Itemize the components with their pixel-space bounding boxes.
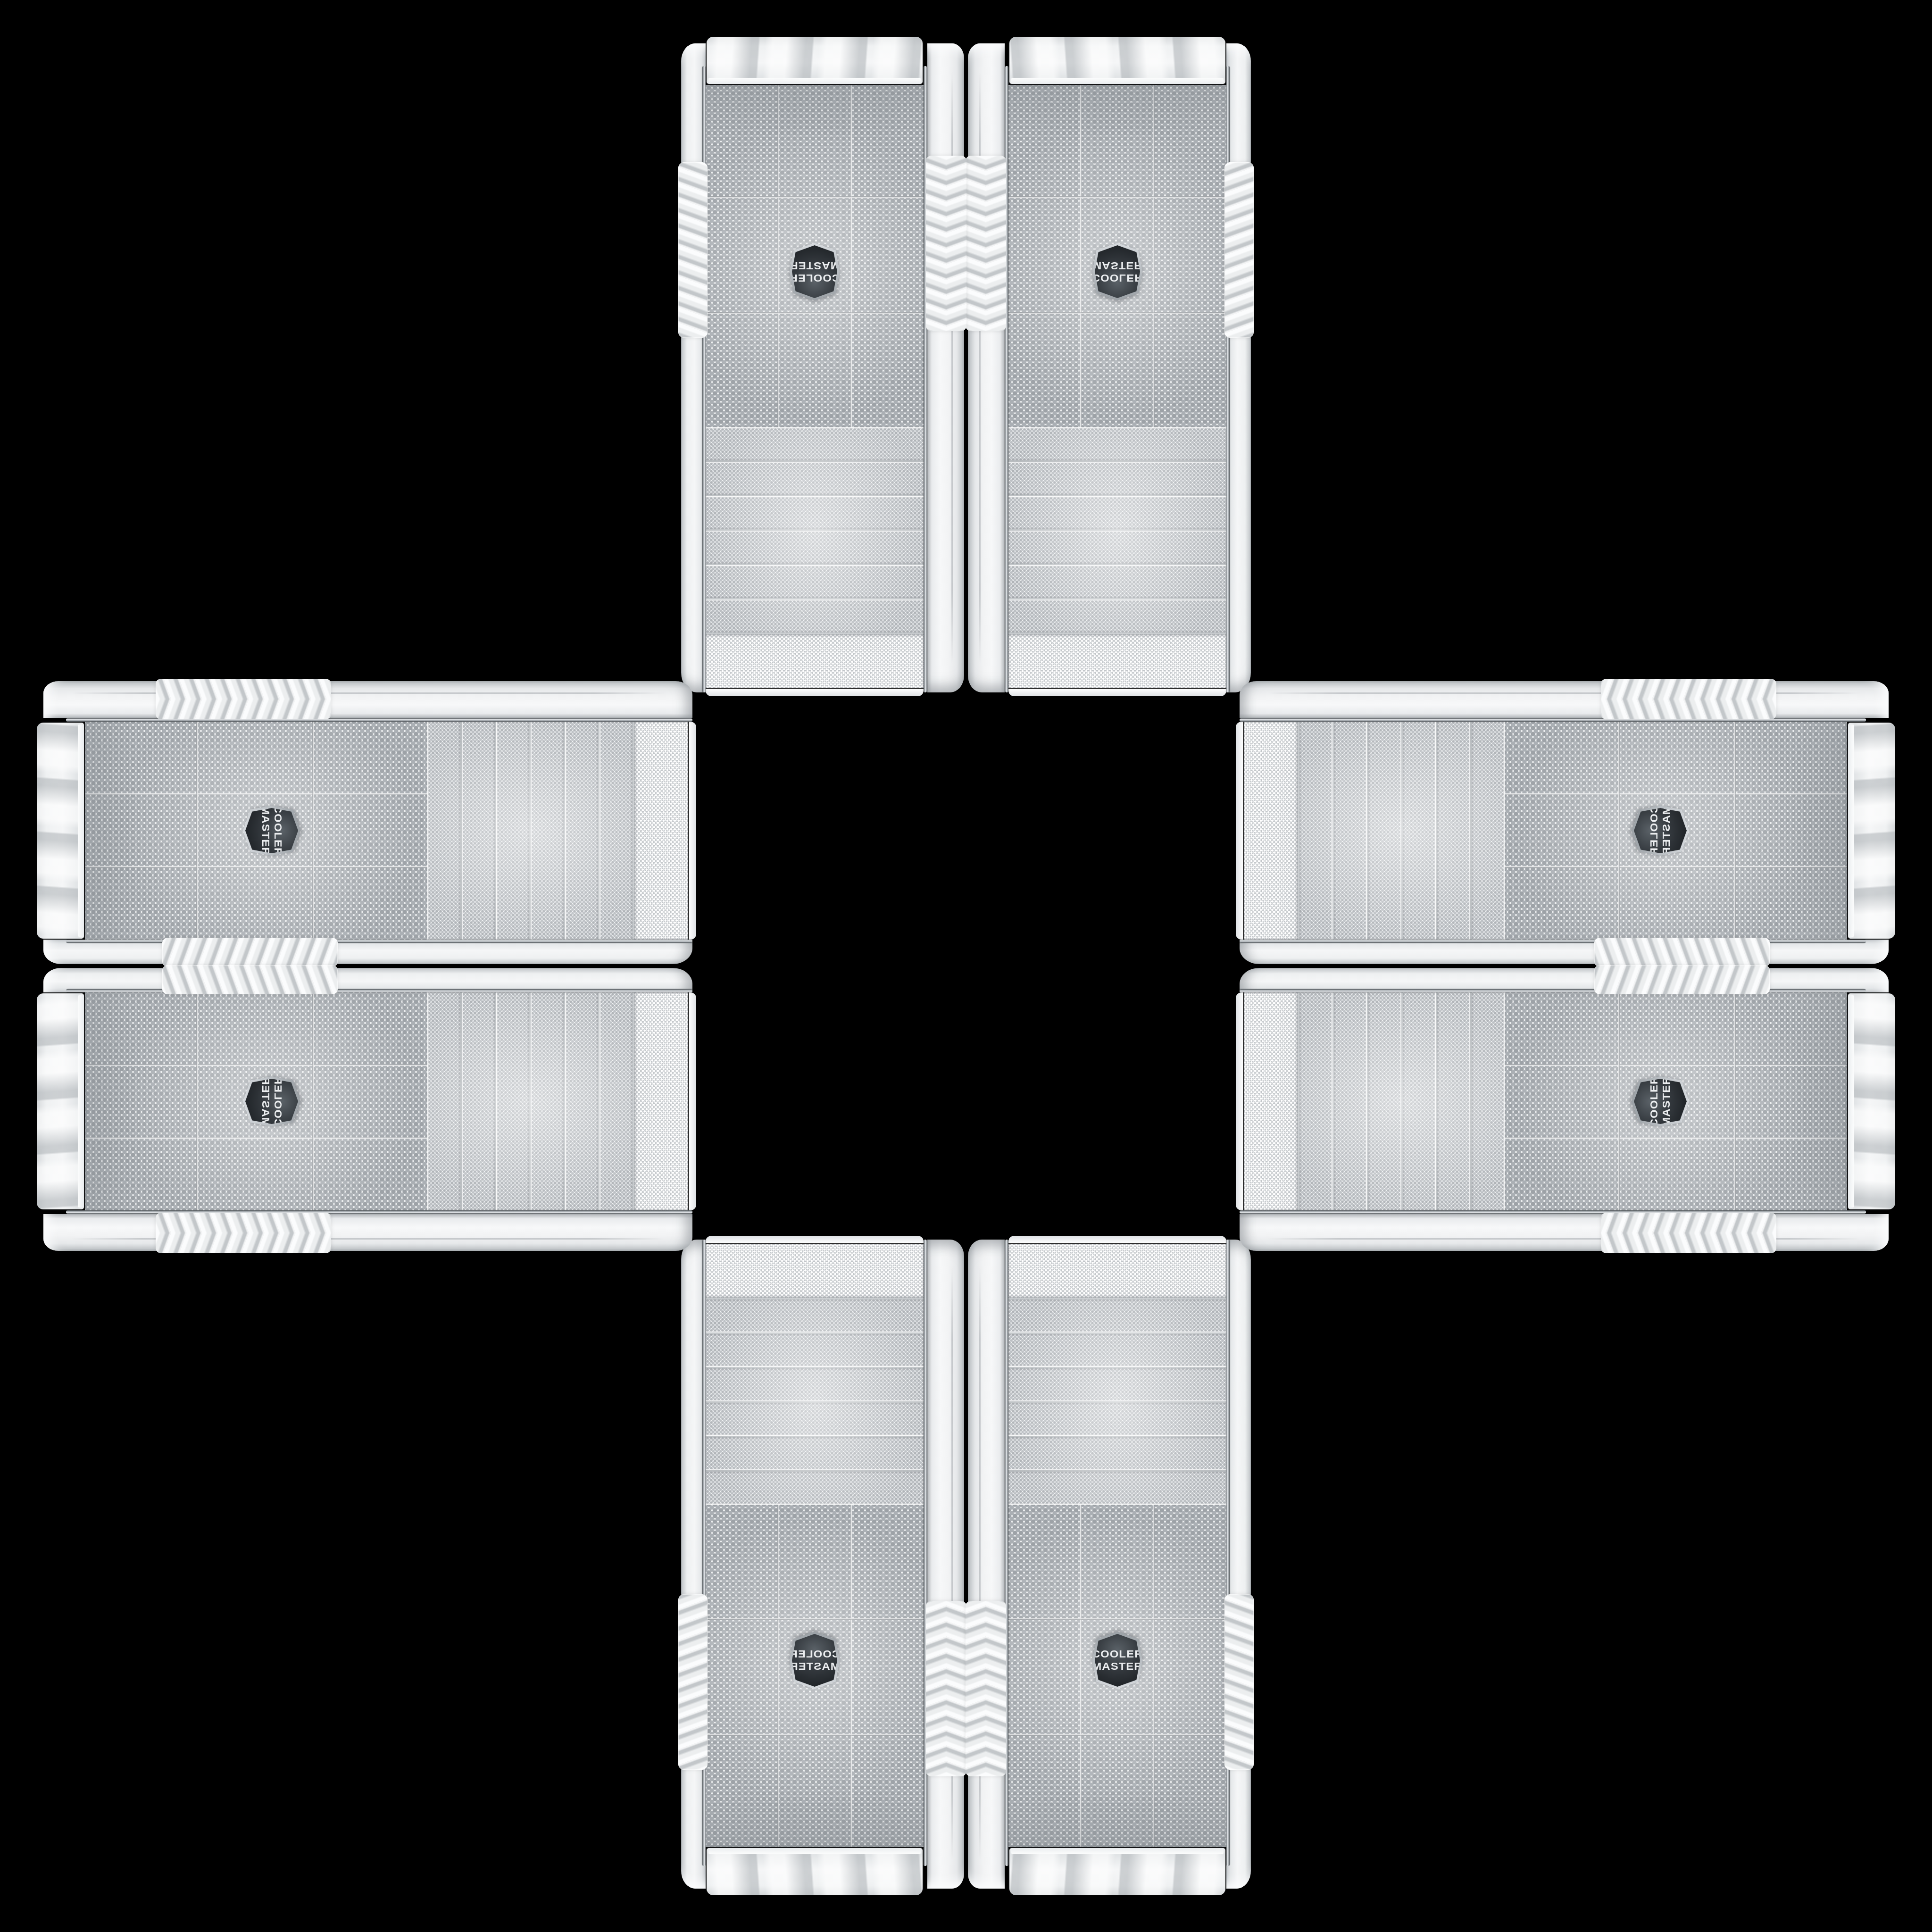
- case-side-rail-narrow: [43, 940, 692, 964]
- logo-badge-face: COOLER MASTER: [1634, 808, 1687, 853]
- logo-text-line1: COOLER: [1649, 805, 1660, 857]
- grip-chevron-right-half: [966, 156, 986, 331]
- side-grip-ribs-narrow: [678, 1594, 708, 1770]
- front-mesh-panel: COOLER MASTER: [1008, 82, 1226, 696]
- case-top-left: COOLER MASTER: [681, 37, 964, 696]
- grip-chevron-left-half: [1601, 699, 1776, 719]
- grip-chevron-right-half: [966, 1601, 986, 1776]
- logo-text-line2: MASTER: [260, 1076, 271, 1126]
- cooler-master-logo-badge: COOLER MASTER: [1092, 243, 1142, 300]
- rounded-bezel-end: [1008, 634, 1226, 688]
- chrome-trim-left: [1240, 940, 1866, 943]
- case-side-rail-narrow: [1240, 940, 1889, 964]
- scalloped-end-cap: [1848, 723, 1895, 939]
- mesh-vent-strips: [706, 427, 924, 634]
- logo-badge-face: COOLER MASTER: [245, 808, 298, 853]
- side-grip-ribs-narrow: [162, 965, 338, 994]
- side-grip-ribs-wide: [966, 156, 1006, 331]
- scalloped-end-cap: [707, 37, 923, 84]
- mesh-bay-area: COOLER MASTER: [706, 1505, 924, 1847]
- strips-sheen-overlay: [1298, 992, 1505, 1210]
- grip-chevron-right-half: [1601, 1233, 1776, 1253]
- chrome-trim-left: [702, 66, 706, 692]
- mesh-bay-area: COOLER MASTER: [85, 992, 427, 1210]
- chrome-trim-left: [66, 989, 692, 992]
- rounded-bezel-end: [706, 1244, 924, 1298]
- bezel-end-lip: [1008, 1236, 1226, 1243]
- mesh-bay-area: COOLER MASTER: [1008, 85, 1226, 427]
- front-mesh-panel: COOLER MASTER: [1236, 992, 1850, 1210]
- case-side-rail-wide: [968, 43, 1005, 692]
- scalloped-end-cap: [707, 1848, 923, 1895]
- grip-chevron-right-half: [946, 156, 966, 331]
- end-cap-lip: [78, 995, 84, 1207]
- side-grip-ribs-wide: [1601, 679, 1776, 719]
- mesh-vent-strips: [1298, 992, 1505, 1210]
- mesh-vent-strips: [427, 722, 634, 940]
- end-cap-lip: [1011, 1848, 1224, 1854]
- logo-badge-face: COOLER MASTER: [1095, 1634, 1140, 1687]
- case-side-rail-narrow: [1226, 43, 1251, 692]
- rounded-bezel-end: [634, 722, 688, 940]
- mesh-bay-area: COOLER MASTER: [706, 85, 924, 427]
- logo-text-line2: MASTER: [1092, 260, 1142, 271]
- logo-badge-face: COOLER MASTER: [792, 1634, 837, 1687]
- case-side-rail-wide: [43, 1214, 692, 1251]
- mesh-vent-strips: [706, 1298, 924, 1505]
- front-mesh-panel: COOLER MASTER: [706, 82, 924, 696]
- case-left-top: COOLER MASTER: [37, 681, 696, 964]
- side-grip-ribs-wide: [156, 1213, 331, 1253]
- grip-chevron-right-half: [946, 1601, 966, 1776]
- cooler-master-logo-badge: COOLER MASTER: [790, 1632, 840, 1689]
- logo-text-line1: COOLER: [273, 805, 283, 857]
- case-side-rail-wide: [968, 1240, 1005, 1889]
- end-cap-lip: [708, 1848, 921, 1854]
- scalloped-end-cap: [37, 723, 84, 939]
- chrome-trim-left: [1226, 1240, 1230, 1866]
- case-bottom-right: COOLER MASTER: [968, 1236, 1251, 1895]
- case-side-rail-wide: [927, 1240, 964, 1889]
- strips-sheen-overlay: [427, 992, 634, 1210]
- case-right-top: COOLER MASTER: [1236, 681, 1895, 964]
- mesh-bay-area: COOLER MASTER: [1505, 722, 1847, 940]
- side-grip-ribs-narrow: [678, 162, 708, 338]
- end-cap-lip: [78, 724, 84, 937]
- scalloped-end-cap: [1009, 1848, 1225, 1895]
- grip-chevron-left-half: [986, 156, 1006, 331]
- rounded-bezel-end: [634, 992, 688, 1210]
- rounded-bezel-end: [1244, 722, 1298, 940]
- case-top-right: COOLER MASTER: [968, 37, 1251, 696]
- grip-chevron-left-half: [986, 1601, 1006, 1776]
- case-side-rail-wide: [1240, 681, 1889, 718]
- case-side-rail-wide: [43, 681, 692, 718]
- side-grip-ribs-narrow: [1594, 938, 1770, 967]
- case-right-bottom: COOLER MASTER: [1236, 968, 1895, 1251]
- side-grip-ribs-narrow: [1594, 965, 1770, 994]
- bezel-end-lip: [706, 689, 924, 696]
- mesh-vent-strips: [1008, 427, 1226, 634]
- strips-sheen-overlay: [427, 722, 634, 940]
- end-cap-lip: [1011, 78, 1224, 84]
- side-grip-ribs-wide: [926, 1601, 966, 1776]
- rounded-bezel-end: [706, 634, 924, 688]
- logo-text-line1: COOLER: [1092, 1649, 1143, 1660]
- side-grip-ribs-narrow: [162, 938, 338, 967]
- side-grip-ribs-wide: [966, 1601, 1006, 1776]
- bezel-end-lip: [1008, 689, 1226, 696]
- logo-text-line2: MASTER: [1661, 805, 1672, 856]
- grip-chevron-left-half: [926, 1601, 946, 1776]
- case-side-rail-wide: [1240, 1214, 1889, 1251]
- side-grip-ribs-wide: [156, 679, 331, 719]
- scalloped-end-cap: [1009, 37, 1225, 84]
- bezel-end-lip: [706, 1236, 924, 1243]
- logo-text-line2: MASTER: [260, 805, 271, 856]
- chrome-trim-left: [1226, 66, 1230, 692]
- side-grip-ribs-wide: [926, 156, 966, 331]
- chrome-trim-left: [66, 940, 692, 943]
- front-mesh-panel: COOLER MASTER: [82, 992, 696, 1210]
- logo-text-line1: COOLER: [789, 1649, 841, 1660]
- scalloped-end-cap: [1848, 993, 1895, 1209]
- mesh-bay-area: COOLER MASTER: [1505, 992, 1847, 1210]
- scalloped-end-cap: [37, 993, 84, 1209]
- logo-text-line1: COOLER: [1649, 1076, 1660, 1127]
- chrome-trim-left: [1240, 989, 1866, 992]
- end-cap-lip: [1848, 724, 1854, 937]
- front-mesh-panel: COOLER MASTER: [1236, 722, 1850, 940]
- grip-chevron-right-half: [1601, 679, 1776, 699]
- bezel-end-lip: [689, 722, 696, 940]
- case-left-bottom: COOLER MASTER: [37, 968, 696, 1251]
- cooler-master-logo-badge: COOLER MASTER: [1632, 806, 1689, 856]
- front-mesh-panel: COOLER MASTER: [706, 1236, 924, 1850]
- bezel-end-lip: [1236, 992, 1243, 1210]
- logo-badge-face: COOLER MASTER: [245, 1079, 298, 1124]
- rounded-bezel-end: [1244, 992, 1298, 1210]
- end-cap-lip: [708, 78, 921, 84]
- bezel-end-lip: [1236, 722, 1243, 940]
- logo-badge-face: COOLER MASTER: [1095, 245, 1140, 298]
- rounded-bezel-end: [1008, 1244, 1226, 1298]
- side-grip-ribs-wide: [1601, 1213, 1776, 1253]
- grip-chevron-left-half: [156, 699, 331, 719]
- bezel-end-lip: [689, 992, 696, 1210]
- grip-chevron-right-half: [156, 679, 331, 699]
- mesh-bay-area: COOLER MASTER: [1008, 1505, 1226, 1847]
- logo-badge-face: COOLER MASTER: [1634, 1079, 1687, 1124]
- logo-text-line2: MASTER: [789, 260, 840, 271]
- logo-badge-face: COOLER MASTER: [792, 245, 837, 298]
- cooler-master-logo-badge: COOLER MASTER: [1092, 1632, 1142, 1689]
- logo-text-line1: COOLER: [1092, 273, 1143, 283]
- cooler-master-logo-badge: COOLER MASTER: [790, 243, 840, 300]
- side-grip-ribs-narrow: [1224, 162, 1254, 338]
- strips-sheen-overlay: [1008, 1298, 1226, 1505]
- mesh-vent-strips: [1298, 722, 1505, 940]
- grip-chevron-left-half: [926, 156, 946, 331]
- mesh-bay-area: COOLER MASTER: [85, 722, 427, 940]
- strips-sheen-overlay: [706, 1298, 924, 1505]
- case-side-rail-wide: [927, 43, 964, 692]
- logo-text-line2: MASTER: [1092, 1661, 1142, 1672]
- chrome-trim-left: [702, 1240, 706, 1866]
- collage-canvas: COOLER MASTER: [0, 0, 1932, 1932]
- logo-text-line2: MASTER: [1661, 1076, 1672, 1126]
- grip-chevron-left-half: [1601, 1213, 1776, 1233]
- strips-sheen-overlay: [706, 427, 924, 634]
- grip-chevron-right-half: [156, 1233, 331, 1253]
- mesh-vent-strips: [1008, 1298, 1226, 1505]
- cooler-master-logo-badge: COOLER MASTER: [243, 806, 300, 856]
- grip-chevron-left-half: [156, 1213, 331, 1233]
- case-bottom-left: COOLER MASTER: [681, 1236, 964, 1895]
- front-mesh-panel: COOLER MASTER: [1008, 1236, 1226, 1850]
- end-cap-lip: [1848, 995, 1854, 1207]
- logo-text-line2: MASTER: [789, 1661, 840, 1672]
- cooler-master-logo-badge: COOLER MASTER: [243, 1076, 300, 1126]
- logo-text-line1: COOLER: [273, 1076, 283, 1127]
- logo-text-line1: COOLER: [789, 273, 841, 283]
- mesh-vent-strips: [427, 992, 634, 1210]
- strips-sheen-overlay: [1298, 722, 1505, 940]
- strips-sheen-overlay: [1008, 427, 1226, 634]
- cooler-master-logo-badge: COOLER MASTER: [1632, 1076, 1689, 1126]
- side-grip-ribs-narrow: [1224, 1594, 1254, 1770]
- front-mesh-panel: COOLER MASTER: [82, 722, 696, 940]
- case-side-rail-narrow: [1226, 1240, 1251, 1889]
